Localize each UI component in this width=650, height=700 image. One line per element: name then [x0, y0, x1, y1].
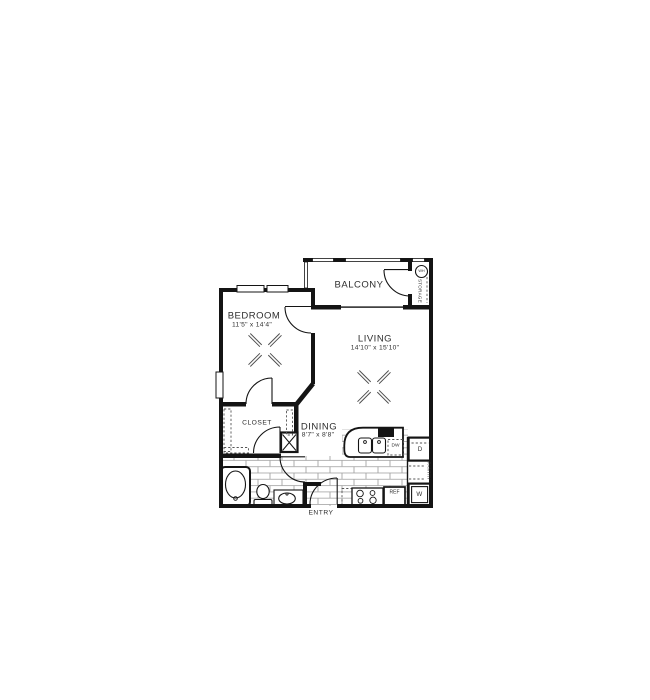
closet-door — [254, 427, 281, 453]
bedroom-door — [285, 307, 311, 334]
floor-plan-drawing — [0, 0, 650, 700]
storage-label: STORAGE — [417, 278, 422, 302]
bedroom-right-wall-upper — [311, 288, 315, 307]
dryer-label: D — [418, 447, 422, 453]
bottom-wall-left — [219, 504, 311, 508]
balcony-label: BALCONY — [335, 280, 384, 290]
dishwasher-label: DW — [392, 444, 400, 449]
bathroom-top-wall — [219, 454, 281, 459]
living-top-wall-left — [311, 305, 341, 310]
bathroom-sink — [279, 493, 296, 504]
stove — [352, 488, 383, 506]
refrigerator-label: REF — [390, 490, 400, 495]
closet-label: CLOSET — [242, 420, 272, 427]
windows — [216, 286, 288, 399]
storage-wall-upper — [408, 258, 412, 271]
bedroom-right-wall-lower — [311, 333, 315, 384]
floor-plan: BALCONY BEDROOM 11'5" x 14'4" LIVING 14'… — [0, 0, 650, 700]
bedroom-dimensions: 11'5" x 14'4" — [232, 322, 272, 329]
bedroom-bottom-wall-left — [219, 402, 246, 407]
counter-wall-stub — [378, 427, 394, 437]
bedroom-closet-door — [246, 378, 272, 404]
patio-slider — [341, 306, 403, 307]
living-ceiling-fan — [358, 371, 391, 404]
dining-dimensions: 8'7" x 8'8" — [302, 433, 335, 440]
living-label: LIVING — [358, 334, 392, 344]
bedroom-window-left — [216, 372, 223, 398]
living-dimensions: 14'10" x 15'10" — [351, 345, 400, 352]
washer-label: W — [416, 492, 422, 498]
entry-label: ENTRY — [308, 510, 333, 517]
storage-door — [384, 270, 410, 296]
closet-right-wall — [294, 402, 299, 433]
bedroom-window-1 — [237, 286, 264, 293]
bedroom-ceiling-fan — [249, 334, 282, 367]
water-heater-label: WH — [418, 270, 424, 274]
bottom-wall-right — [337, 504, 433, 508]
pantry-label: PANTRY — [426, 461, 431, 480]
dining-label: DINING — [301, 422, 337, 432]
toilet-bowl — [257, 485, 269, 499]
bedroom-window-2 — [267, 286, 288, 293]
living-top-wall-right — [403, 305, 433, 310]
bedroom-bottom-wall-right — [272, 402, 298, 407]
pantry-divider — [407, 437, 408, 506]
bedroom-label: BEDROOM — [228, 311, 281, 321]
